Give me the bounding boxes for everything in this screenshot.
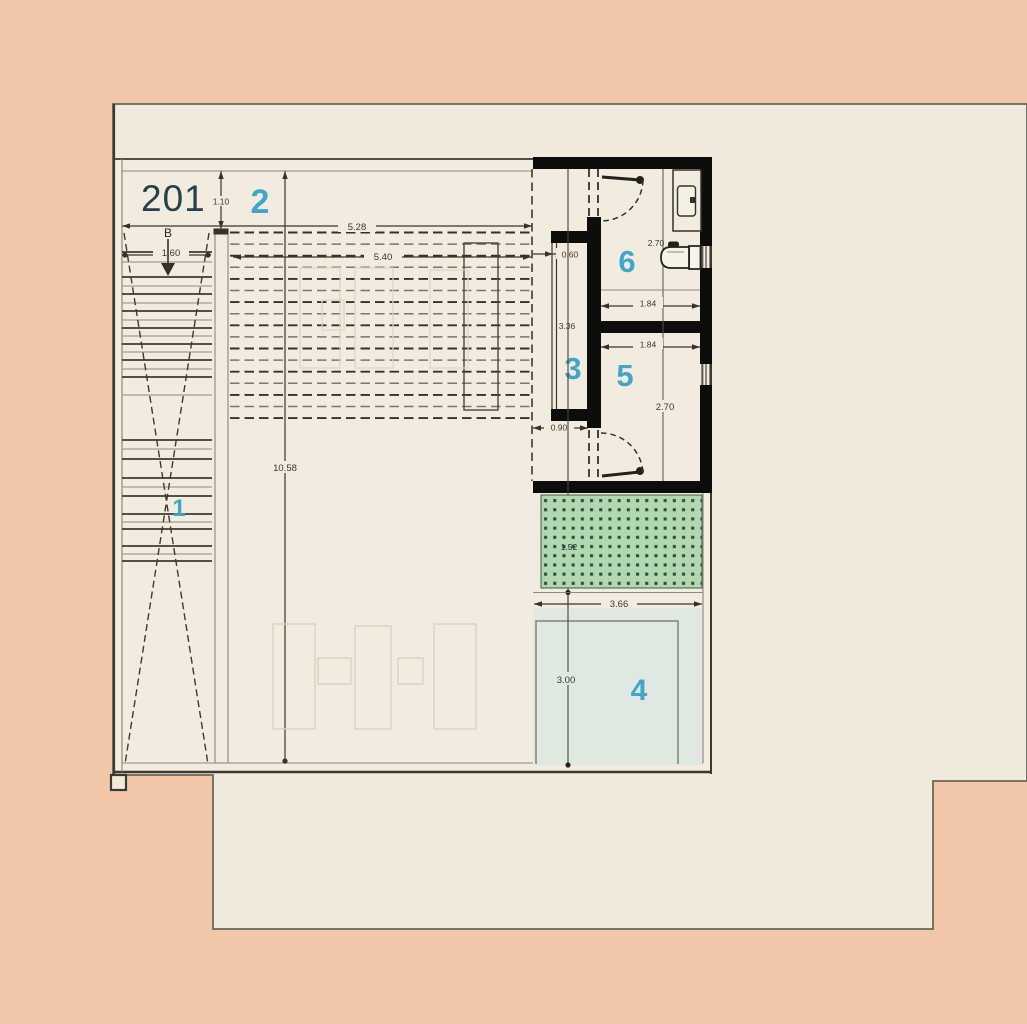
svg-text:1.84: 1.84	[640, 299, 657, 309]
svg-text:0.90: 0.90	[551, 423, 568, 433]
svg-text:2.70: 2.70	[648, 238, 665, 248]
svg-text:5.40: 5.40	[374, 252, 393, 263]
svg-text:1.84: 1.84	[640, 340, 657, 350]
svg-text:1.52: 1.52	[561, 542, 578, 552]
svg-text:5.28: 5.28	[348, 222, 367, 233]
svg-text:3: 3	[564, 351, 581, 386]
svg-text:3.36: 3.36	[559, 321, 576, 331]
svg-text:3.00: 3.00	[557, 675, 576, 686]
svg-text:6: 6	[618, 244, 635, 279]
svg-text:4: 4	[631, 674, 648, 707]
svg-text:0.60: 0.60	[562, 250, 579, 260]
svg-text:201: 201	[141, 178, 206, 219]
svg-text:B: B	[164, 226, 172, 240]
svg-text:1.10: 1.10	[213, 197, 230, 207]
svg-text:1: 1	[172, 495, 185, 522]
svg-text:2: 2	[251, 183, 270, 221]
svg-text:10.58: 10.58	[273, 463, 297, 474]
svg-text:2.70: 2.70	[656, 402, 675, 413]
svg-text:5: 5	[616, 358, 633, 393]
svg-text:1.60: 1.60	[162, 248, 181, 259]
